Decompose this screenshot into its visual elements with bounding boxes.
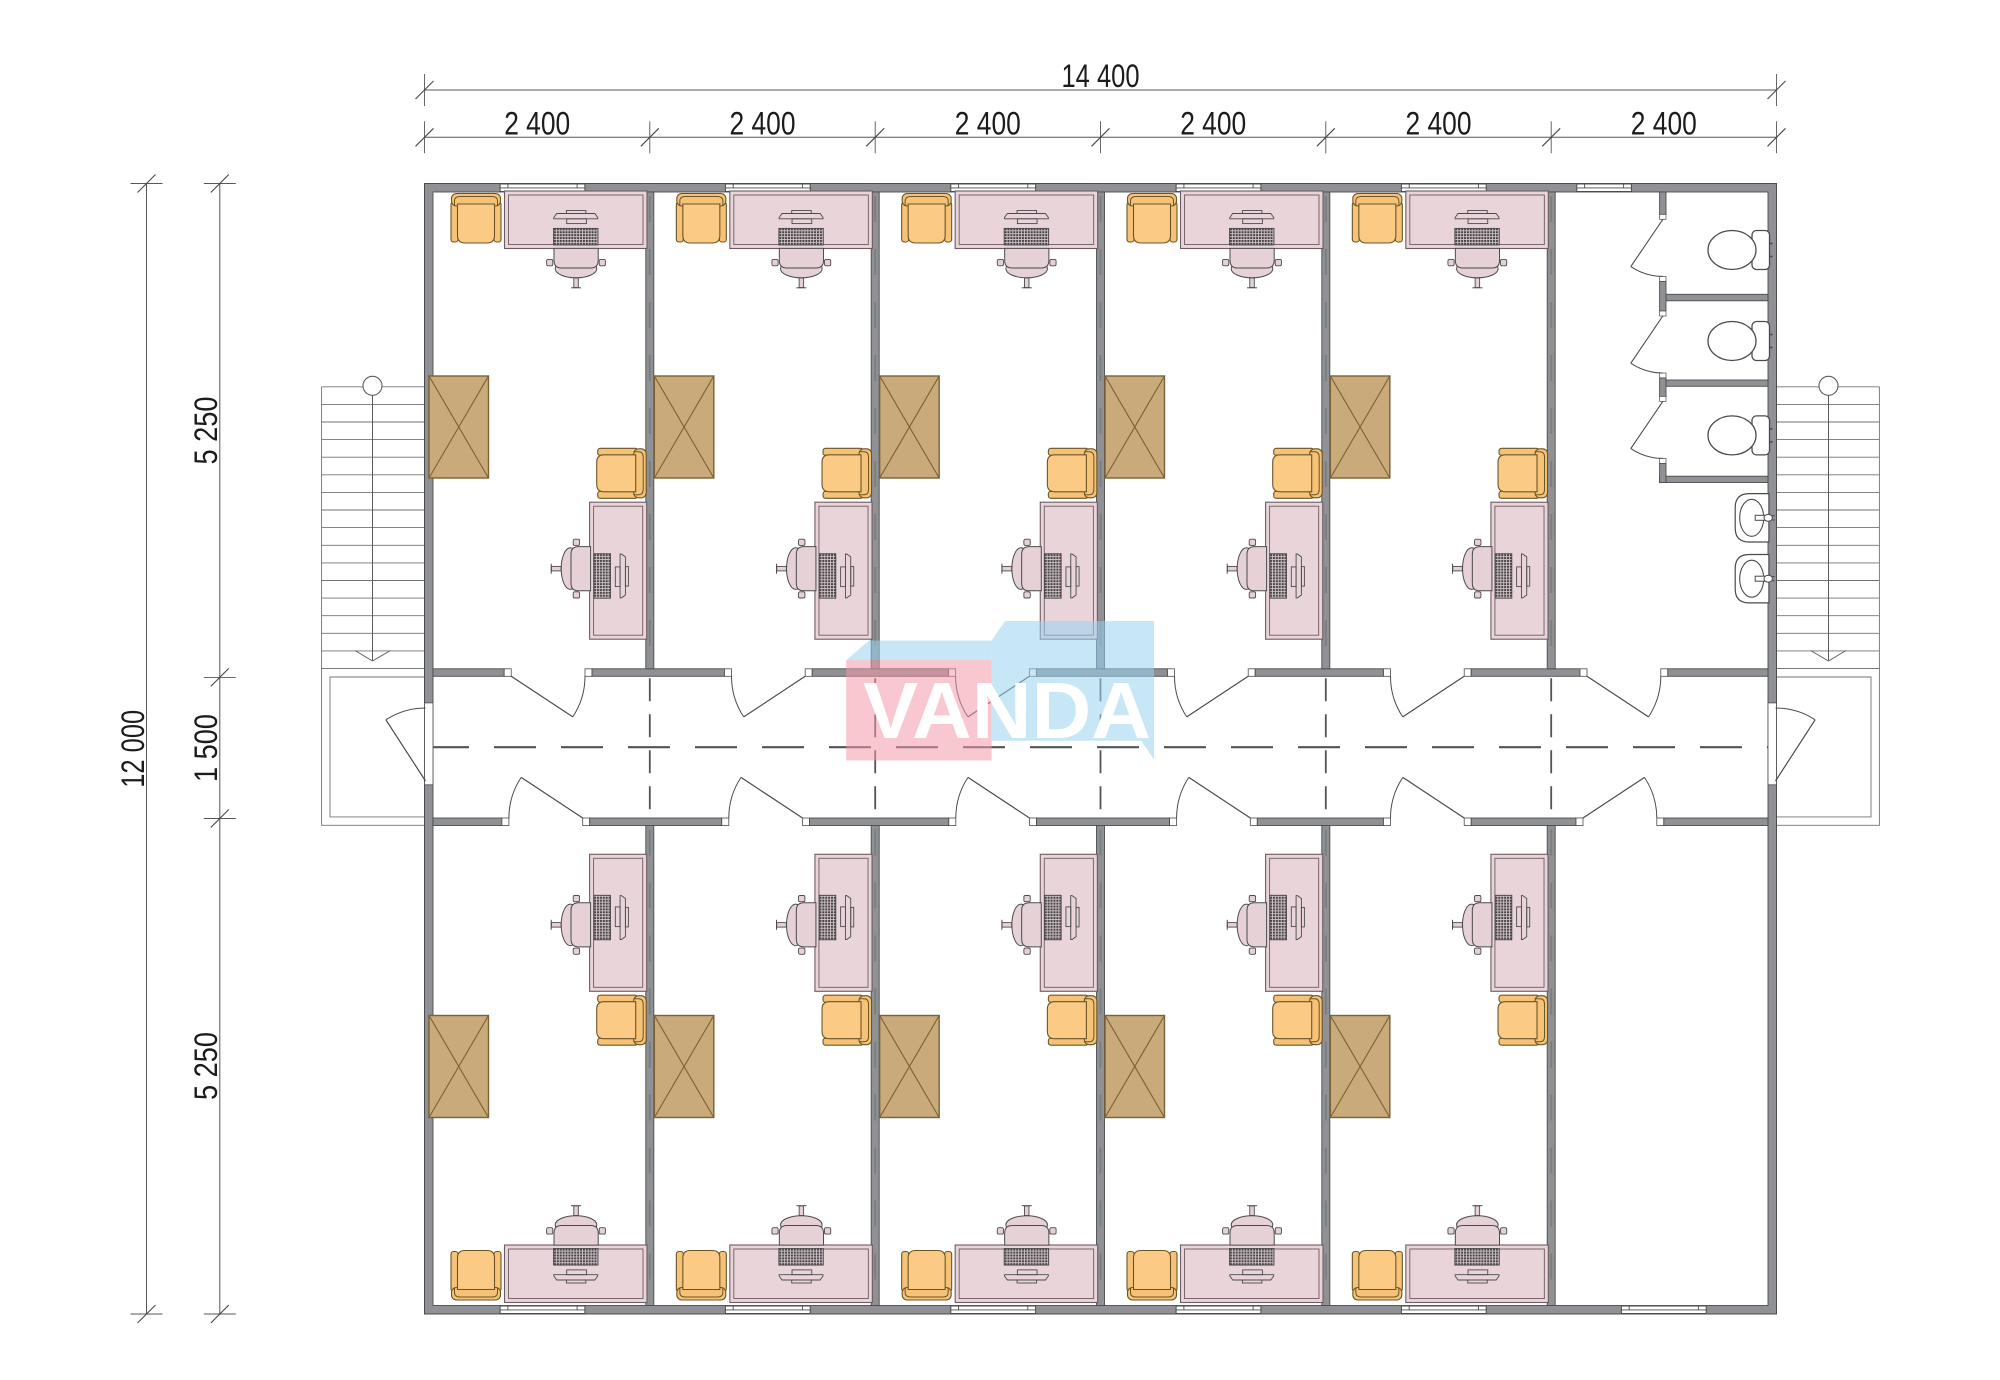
svg-text:5 250: 5 250 [188,1032,224,1100]
svg-text:2 400: 2 400 [730,106,796,142]
svg-text:12 000: 12 000 [115,710,151,788]
svg-text:2 400: 2 400 [1180,106,1246,142]
svg-text:14 400: 14 400 [1062,58,1140,94]
svg-text:2 400: 2 400 [1631,106,1697,142]
svg-text:1 500: 1 500 [188,714,224,782]
svg-text:2 400: 2 400 [955,106,1021,142]
svg-text:5 250: 5 250 [188,397,224,465]
svg-text:2 400: 2 400 [504,106,570,142]
svg-text:VANDA: VANDA [863,666,1151,755]
svg-text:2 400: 2 400 [1406,106,1472,142]
